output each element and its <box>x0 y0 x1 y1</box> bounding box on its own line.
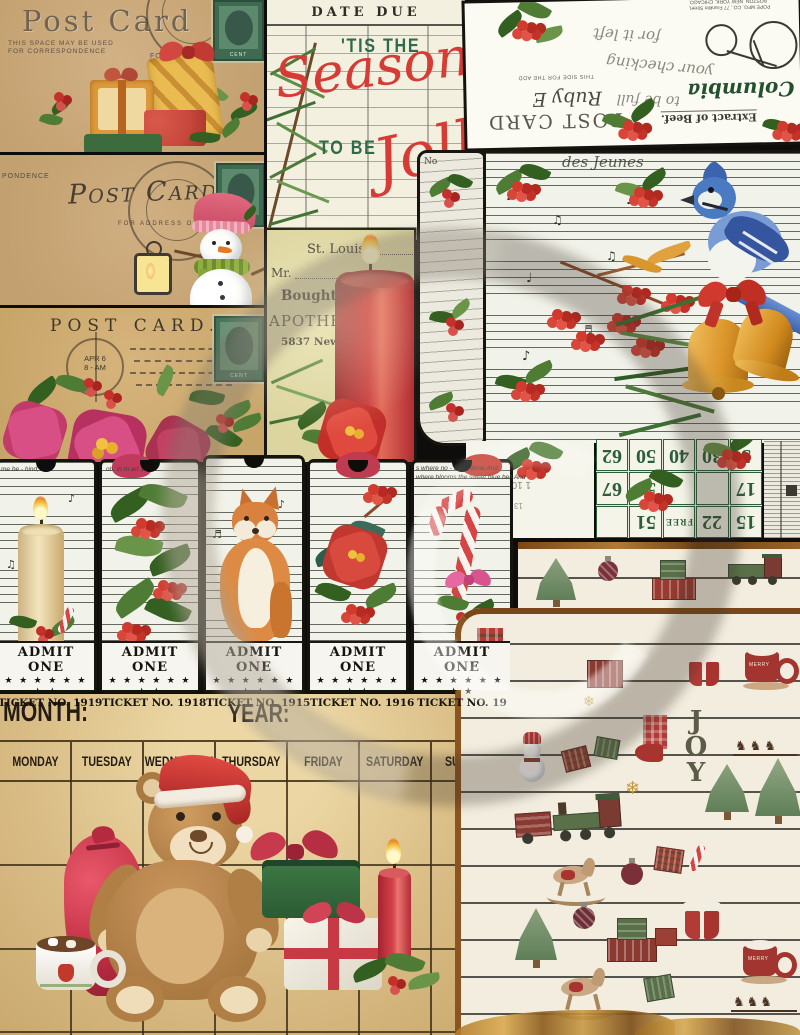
train-motif <box>728 554 792 586</box>
gift-stack-motif <box>607 914 677 962</box>
ticket-stub: ADMIT ONE ★ ★ ★ ★ ★ ★ ★ ★ TICKET NO. 19 <box>414 641 510 690</box>
handwriting-line: for it left <box>593 24 661 45</box>
gift-box-motif <box>587 660 623 688</box>
holly-cluster <box>494 0 575 69</box>
bingo-card: 62 50 40 30 3 67 56 17 51 FREE 22 15 <box>596 439 762 538</box>
gift-plaid-motif <box>561 745 592 773</box>
holly-cluster <box>704 439 762 485</box>
lyric-title: des Jeunes <box>562 153 644 171</box>
ticket-stub: ADMIT ONE ★ ★ ★ ★ ★ ★ ★ ★ TICKET NO. 191… <box>206 641 302 690</box>
snowman-motif <box>515 728 549 784</box>
ruby-signature: Ruby E <box>532 87 602 110</box>
date-due-header: DATE DUE <box>267 0 465 26</box>
mug-text: MERRY <box>749 662 769 668</box>
gift-plaid-motif <box>643 974 675 1002</box>
mr-line: Mr. <box>271 266 292 280</box>
snowman-illustration <box>168 207 264 305</box>
no-label: No <box>424 157 437 167</box>
apothecary-receipt: St. Louis, Mr. Bought of J. G. OEHR APOT… <box>267 230 414 462</box>
reindeer-silhouettes: ♞♞♞ <box>735 738 800 754</box>
gift-stack-motif <box>648 558 708 602</box>
gift-boxes-illustration <box>40 48 264 152</box>
ticket-candle: me be - hind, an ♪ ♫ ADMIT ONE ★ ★ ★ ★ ★… <box>0 462 94 690</box>
mug-text: MERRY <box>748 956 768 962</box>
envelope-flap: No <box>417 150 487 446</box>
postmark-date: APR 6 8 - AM <box>68 354 122 372</box>
bingo-cell: 50 <box>629 439 661 471</box>
columbia-bicycle-ad: Columbia <box>695 0 800 105</box>
ticket-fox: ♪ ♬ ADMIT ONE ★ ★ ★ ★ ★ ★ ★ ★ TICKET NO.… <box>206 458 302 690</box>
snowflake-icon: ❄ <box>625 778 640 799</box>
poinsettia-garland-illustration <box>0 394 264 462</box>
train-motif <box>513 790 626 848</box>
bingo-cell: 62 <box>596 439 628 471</box>
holly-cluster <box>603 103 674 148</box>
reindeer-silhouettes: ♞♞♞ <box>733 994 800 1010</box>
holly-cluster <box>426 389 476 429</box>
side-note-reversed: THIS SIDE FOR THE ADD <box>518 73 594 81</box>
to-be-text: TO BE <box>319 138 377 160</box>
boots-motif <box>687 654 723 688</box>
holly-cluster <box>430 303 478 343</box>
bingo-cell: 40 <box>663 439 695 471</box>
holly-illustration <box>106 484 194 644</box>
sleigh-line <box>731 1010 797 1012</box>
holly-cluster <box>616 173 680 217</box>
mug-motif: MERRY <box>743 646 795 692</box>
postcard-snowman: PONDENCE Post Card FOR ADDRESS ONLY CENT <box>0 155 264 305</box>
columbia-text: Columbia <box>687 77 795 103</box>
postcard-poinsettia: POST CARD. APR 6 8 - AM CENT <box>0 308 264 462</box>
music-sheet-envelope: des Jeunes ♪ ♫ ♬ ♪ ♩ ♫ ♪ ♬ <box>483 150 800 443</box>
holly-cluster <box>500 441 580 493</box>
holly-sprig <box>352 952 442 1002</box>
rocking-horse-motif <box>545 858 609 906</box>
candy-cane-motif <box>688 844 707 873</box>
bear-belly <box>136 888 224 984</box>
tree-motif <box>536 558 576 606</box>
gift-yellow-bow <box>158 38 218 64</box>
postage-stamp: CENT <box>214 316 264 382</box>
ticket-stub: ADMIT ONE ★ ★ ★ ★ ★ ★ ★ ★ TICKET NO. 191… <box>102 641 198 690</box>
red-candle <box>376 844 416 966</box>
edge-text: PONDENCE <box>2 173 50 180</box>
ephemera-sheet: Ruby E for it left your checking to be f… <box>465 0 800 148</box>
red-bloom <box>336 452 380 478</box>
fox-illustration <box>212 486 298 642</box>
bells-illustration <box>614 279 800 443</box>
santa-hat <box>158 750 262 814</box>
teddy-bear-illustration <box>0 694 456 1035</box>
tree-motif <box>515 908 557 968</box>
gift-green <box>84 134 162 152</box>
mug-motif: MERRY <box>741 938 793 986</box>
holly-cluster <box>624 469 694 529</box>
collage-canvas: Post Card THIS SPACE MAY BE USED FOR COR… <box>0 0 800 1035</box>
extract-ad-reversed: Extract of Beef. <box>661 109 757 125</box>
stocking-motif <box>635 706 675 768</box>
candle-illustration <box>10 498 82 648</box>
ribbon-bow <box>444 566 496 596</box>
ticket-poinsettia: ADMIT ONE ★ ★ ★ ★ ★ ★ ★ ★ TICKET NO. 191… <box>310 462 406 690</box>
ornament-motif <box>573 902 595 930</box>
postcard-gifts: Post Card THIS SPACE MAY BE USED FOR COR… <box>0 0 264 152</box>
sleigh-line <box>733 754 797 756</box>
poinsettia-illustration <box>312 518 404 638</box>
postcard-title: POST CARD. <box>50 316 220 336</box>
snowflake-icon: ❄ <box>583 694 595 710</box>
season-text: Season <box>271 24 465 110</box>
ornament-motif <box>598 556 618 580</box>
boots-motif <box>683 902 723 942</box>
bingo-cell: 15 <box>730 506 762 538</box>
ornament-motif <box>621 858 643 886</box>
newsprint-strip <box>764 441 800 538</box>
ticket-stub: ADMIT ONE ★ ★ ★ ★ ★ ★ ★ ★ TICKET NO. 191… <box>310 641 406 690</box>
cocoa-mug <box>36 932 114 992</box>
pattern-paper-upper <box>518 542 800 608</box>
calendar-page: MONTH: YEAR: MONDAY TUESDAY WEDNESDAY TH… <box>0 694 456 1035</box>
holly-cluster <box>494 161 564 211</box>
bow-icon <box>696 275 772 315</box>
ticket-holly: oh, in m art 1 ADMIT ONE ★ ★ ★ ★ ★ ★ ★ ★… <box>102 462 198 690</box>
ticket-stub: ADMIT ONE ★ ★ ★ ★ ★ ★ ★ ★ TICKET NO. 191… <box>0 641 94 690</box>
holly-cluster <box>428 173 476 213</box>
tree-motif <box>755 758 800 824</box>
ticket-candy-cane: s where no - b are done,And where blooms… <box>414 462 510 690</box>
rust-edge <box>518 542 800 549</box>
gift-plaid-motif <box>593 736 620 760</box>
gift-plaid-motif <box>653 846 684 874</box>
gold-glitter-edge <box>635 1018 800 1035</box>
holly-cluster <box>763 114 800 145</box>
lantern-icon <box>134 249 168 291</box>
bingo-cell: 22 <box>696 506 728 538</box>
tree-motif <box>705 764 749 820</box>
